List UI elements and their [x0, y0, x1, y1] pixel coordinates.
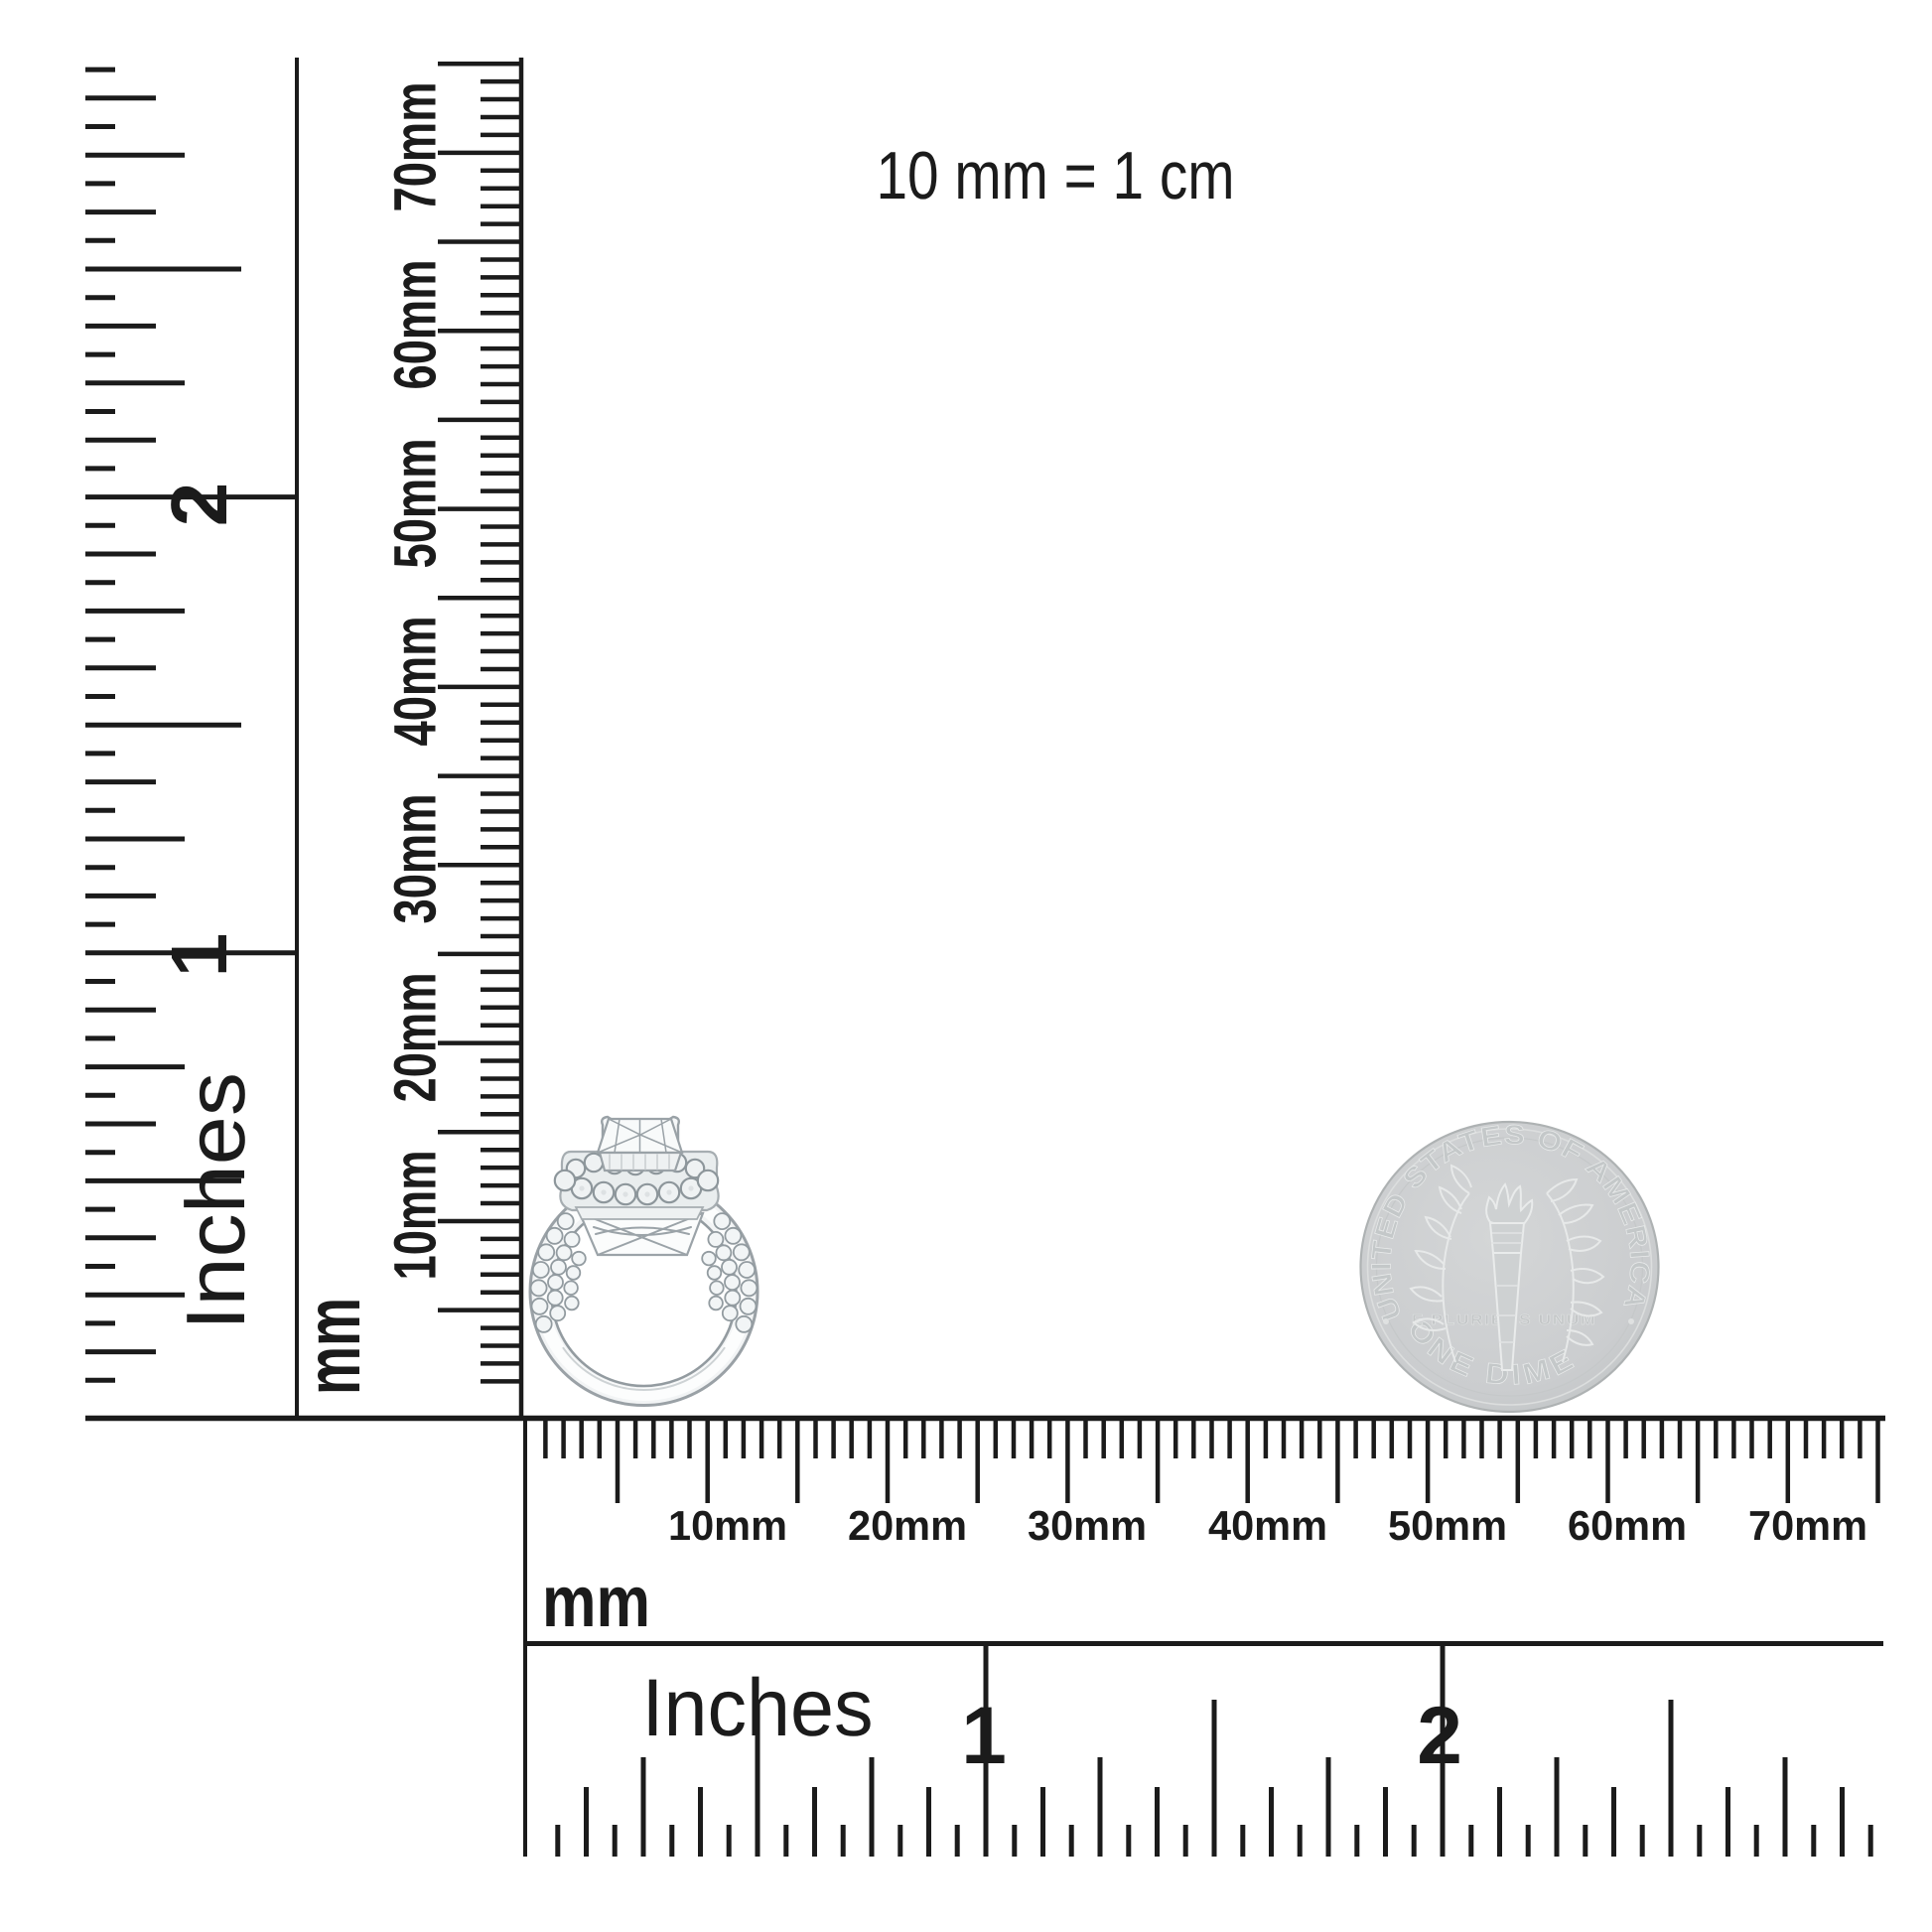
- svg-text:mm: mm: [289, 1298, 376, 1395]
- svg-text:Inches: Inches: [642, 1663, 874, 1753]
- svg-text:30mm: 30mm: [382, 794, 449, 924]
- svg-text:40mm: 40mm: [1208, 1502, 1327, 1549]
- svg-text:50mm: 50mm: [382, 439, 449, 569]
- svg-text:10mm: 10mm: [382, 1151, 449, 1281]
- svg-text:1: 1: [155, 933, 243, 978]
- svg-text:70mm: 70mm: [382, 82, 449, 212]
- svg-text:50mm: 50mm: [1388, 1502, 1507, 1549]
- svg-text:1: 1: [961, 1691, 1007, 1781]
- svg-text:40mm: 40mm: [382, 617, 449, 747]
- svg-text:20mm: 20mm: [382, 973, 449, 1103]
- svg-text:20mm: 20mm: [848, 1502, 967, 1549]
- svg-text:60mm: 60mm: [1568, 1502, 1687, 1549]
- svg-text:10mm: 10mm: [668, 1502, 787, 1549]
- svg-text:10 mm = 1 cm: 10 mm = 1 cm: [877, 138, 1235, 213]
- svg-text:70mm: 70mm: [1748, 1502, 1867, 1549]
- svg-text:2: 2: [155, 483, 243, 527]
- svg-text:mm: mm: [542, 1562, 650, 1642]
- svg-text:60mm: 60mm: [382, 260, 449, 390]
- svg-text:30mm: 30mm: [1028, 1502, 1147, 1549]
- svg-text:2: 2: [1417, 1691, 1462, 1781]
- svg-text:Inches: Inches: [169, 1072, 262, 1330]
